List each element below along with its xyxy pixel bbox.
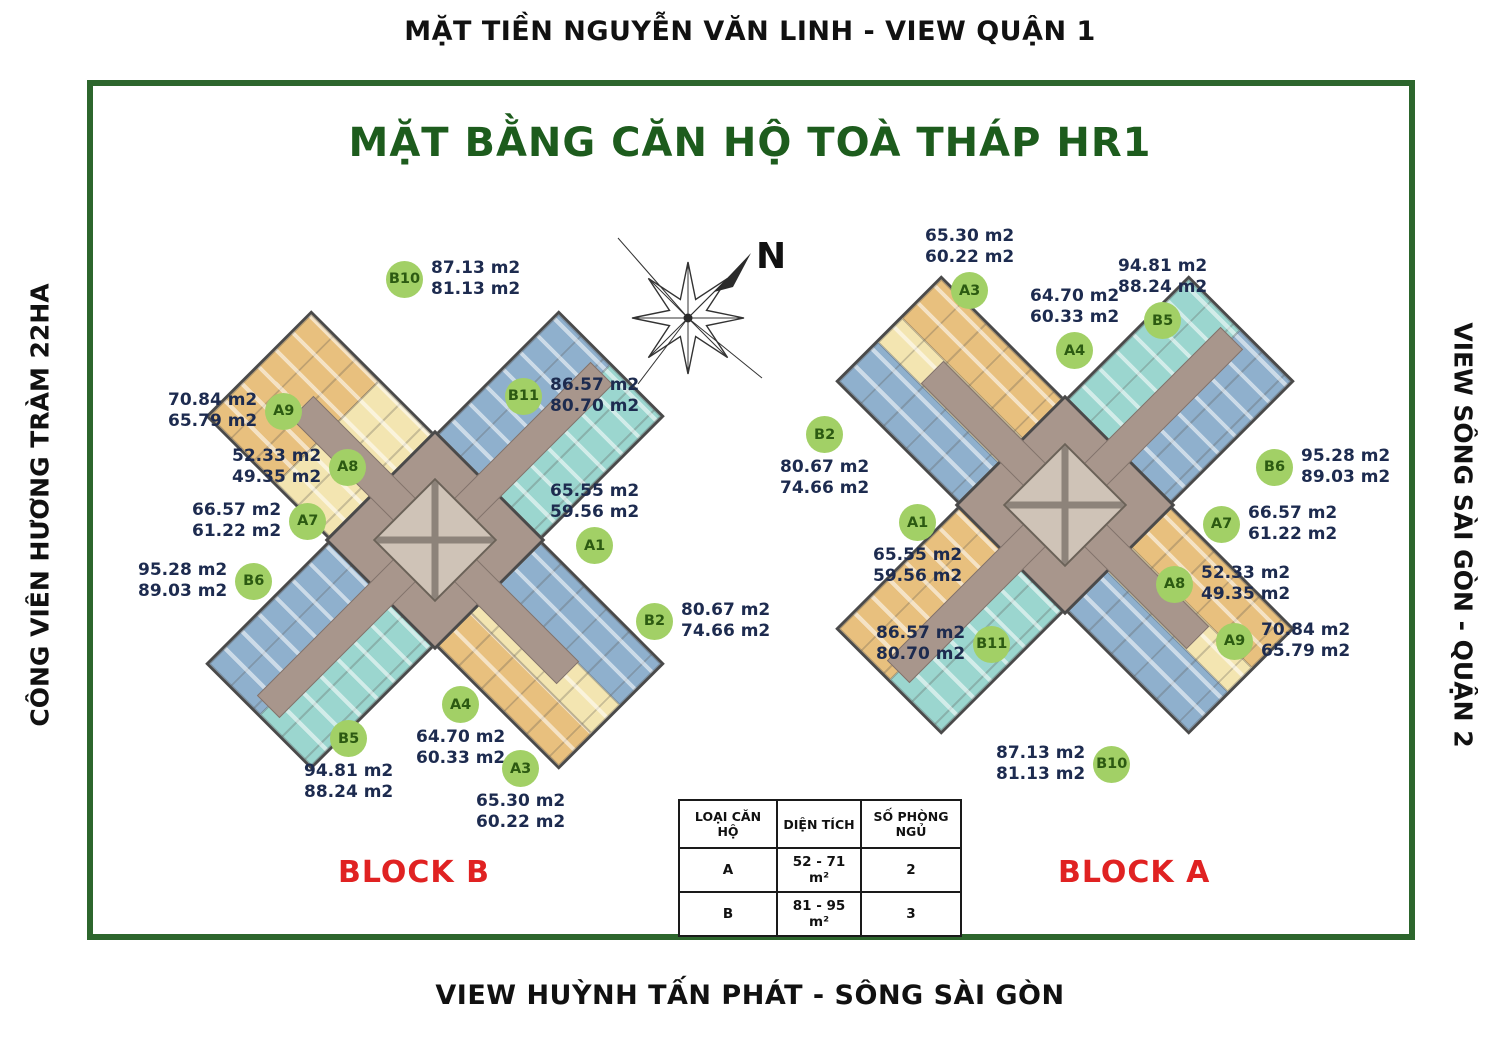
area-net: 60.22 m2 [476, 812, 565, 833]
cell-area: 81 - 95 m² [777, 892, 861, 936]
unit-badge: B2 [806, 416, 843, 453]
unit-badge: B5 [330, 720, 367, 757]
unit-label-b6-block-b: 95.28 m289.03 m2 B6 [138, 560, 272, 602]
unit-label-a3-block-a: 65.30 m260.22 m2 A3 [925, 226, 1014, 309]
unit-badge: A4 [442, 686, 479, 723]
left-park-label: CÔNG VIÊN HƯƠNG TRÀM 22HA [26, 283, 55, 726]
unit-badge: A3 [951, 272, 988, 309]
unit-label-a1-block-a: A1 65.55 m259.56 m2 [873, 504, 962, 587]
unit-label-a7-block-b: 66.57 m261.22 m2 A7 [192, 500, 326, 542]
area-net: 88.24 m2 [1118, 277, 1207, 298]
area-net: 65.79 m2 [168, 411, 257, 432]
area-net: 60.22 m2 [925, 247, 1014, 268]
area-gross: 64.70 m2 [416, 727, 505, 748]
cell-type: A [679, 848, 777, 892]
unit-badge: A4 [1056, 332, 1093, 369]
area-gross: 65.30 m2 [476, 791, 565, 812]
unit-label-b6-block-a: B6 95.28 m289.03 m2 [1256, 446, 1390, 488]
area-gross: 80.67 m2 [780, 457, 869, 478]
area-gross: 87.13 m2 [996, 743, 1085, 764]
legend-header-row: LOẠI CĂN HỘ DIỆN TÍCH SỐ PHÒNG NGỦ [679, 800, 961, 848]
unit-label-b2-block-b: B2 80.67 m274.66 m2 [636, 600, 770, 642]
area-net: 89.03 m2 [1301, 467, 1390, 488]
page-title: MẶT BẰNG CĂN HỘ TOÀ THÁP HR1 [0, 120, 1500, 166]
unit-badge: B6 [235, 563, 272, 600]
area-gross: 52.33 m2 [1201, 563, 1290, 584]
legend-row-b: B 81 - 95 m² 3 [679, 892, 961, 936]
area-gross: 70.84 m2 [168, 390, 257, 411]
area-gross: 86.57 m2 [550, 375, 639, 396]
area-net: 89.03 m2 [138, 581, 227, 602]
area-net: 88.24 m2 [304, 782, 393, 803]
unit-badge: B11 [505, 378, 542, 415]
area-net: 81.13 m2 [996, 764, 1085, 785]
area-net: 59.56 m2 [550, 502, 639, 523]
area-gross: 86.57 m2 [876, 623, 965, 644]
unit-label-a9-block-b: 70.84 m265.79 m2 A9 [168, 390, 302, 432]
bottom-street-label: VIEW HUỲNH TẤN PHÁT - SÔNG SÀI GÒN [0, 980, 1500, 1011]
area-gross: 66.57 m2 [1248, 503, 1337, 524]
area-gross: 95.28 m2 [1301, 446, 1390, 467]
unit-badge: A8 [1156, 566, 1193, 603]
area-net: 60.33 m2 [1030, 307, 1119, 328]
area-net: 80.70 m2 [550, 396, 639, 417]
unit-badge: A7 [1203, 506, 1240, 543]
block-a-name: BLOCK A [1058, 855, 1210, 890]
header-unit-type: LOẠI CĂN HỘ [679, 800, 777, 848]
cell-bedrooms: 2 [861, 848, 961, 892]
unit-label-a8-block-b: 52.33 m249.35 m2 A8 [232, 446, 366, 488]
unit-badge: A8 [329, 449, 366, 486]
unit-badge: B5 [1144, 302, 1181, 339]
area-net: 74.66 m2 [681, 621, 770, 642]
unit-label-a1-block-b: 65.55 m259.56 m2 A1 [550, 481, 639, 564]
unit-label-a3-block-b: A3 65.30 m260.22 m2 [476, 750, 565, 833]
unit-badge: A1 [576, 527, 613, 564]
floorplan-page: MẶT TIỀN NGUYỄN VĂN LINH - VIEW QUẬN 1 M… [0, 0, 1500, 1041]
top-street-label: MẶT TIỀN NGUYỄN VĂN LINH - VIEW QUẬN 1 [0, 16, 1500, 47]
area-gross: 52.33 m2 [232, 446, 321, 467]
unit-label-a4-block-a: 64.70 m260.33 m2 A4 [1030, 286, 1119, 369]
area-net: 61.22 m2 [192, 521, 281, 542]
unit-label-a7-block-a: A7 66.57 m261.22 m2 [1203, 503, 1337, 545]
area-net: 74.66 m2 [780, 478, 869, 499]
area-net: 59.56 m2 [873, 566, 962, 587]
unit-badge: B11 [973, 626, 1010, 663]
unit-badge: B10 [1093, 746, 1130, 783]
area-gross: 65.55 m2 [873, 545, 962, 566]
header-bedrooms: SỐ PHÒNG NGỦ [861, 800, 961, 848]
unit-badge: A1 [899, 504, 936, 541]
area-gross: 95.28 m2 [138, 560, 227, 581]
area-gross: 94.81 m2 [1118, 256, 1207, 277]
area-gross: 70.84 m2 [1261, 620, 1350, 641]
cell-area: 52 - 71 m² [777, 848, 861, 892]
area-gross: 87.13 m2 [431, 258, 520, 279]
area-gross: 94.81 m2 [304, 761, 393, 782]
block-b-name: BLOCK B [338, 855, 490, 890]
area-net: 61.22 m2 [1248, 524, 1337, 545]
unit-label-b11-block-b: B11 86.57 m280.70 m2 [505, 375, 639, 417]
area-net: 49.35 m2 [232, 467, 321, 488]
header-area: DIỆN TÍCH [777, 800, 861, 848]
unit-badge: B2 [636, 603, 673, 640]
unit-badge: A3 [502, 750, 539, 787]
unit-label-b10-block-b: B10 87.13 m281.13 m2 [386, 258, 520, 300]
area-gross: 64.70 m2 [1030, 286, 1119, 307]
area-gross: 66.57 m2 [192, 500, 281, 521]
unit-label-a8-block-a: A8 52.33 m249.35 m2 [1156, 563, 1290, 605]
unit-type-legend-table: LOẠI CĂN HỘ DIỆN TÍCH SỐ PHÒNG NGỦ A 52 … [678, 799, 962, 937]
area-net: 81.13 m2 [431, 279, 520, 300]
unit-label-b2-block-a: B2 80.67 m274.66 m2 [780, 416, 869, 499]
area-gross: 65.30 m2 [925, 226, 1014, 247]
area-net: 80.70 m2 [876, 644, 965, 665]
unit-label-b11-block-a: 86.57 m280.70 m2 B11 [876, 623, 1010, 665]
unit-badge: A9 [1216, 623, 1253, 660]
area-gross: 80.67 m2 [681, 600, 770, 621]
unit-badge: B10 [386, 261, 423, 298]
legend-row-a: A 52 - 71 m² 2 [679, 848, 961, 892]
unit-label-b10-block-a: 87.13 m281.13 m2 B10 [996, 743, 1130, 785]
area-gross: 65.55 m2 [550, 481, 639, 502]
area-net: 65.79 m2 [1261, 641, 1350, 662]
right-river-label: VIEW SÔNG SÀI GÒN - QUẬN 2 [1449, 322, 1478, 747]
cell-type: B [679, 892, 777, 936]
area-net: 49.35 m2 [1201, 584, 1290, 605]
unit-badge: A7 [289, 503, 326, 540]
unit-label-a9-block-a: A9 70.84 m265.79 m2 [1216, 620, 1350, 662]
cell-bedrooms: 3 [861, 892, 961, 936]
unit-label-b5-block-b: B5 94.81 m288.24 m2 [304, 720, 393, 803]
unit-badge: B6 [1256, 449, 1293, 486]
unit-badge: A9 [265, 393, 302, 430]
compass-n-label: N [756, 236, 785, 277]
unit-label-b5-block-a: 94.81 m288.24 m2 B5 [1118, 256, 1207, 339]
compass-rose-icon: N [610, 226, 785, 391]
